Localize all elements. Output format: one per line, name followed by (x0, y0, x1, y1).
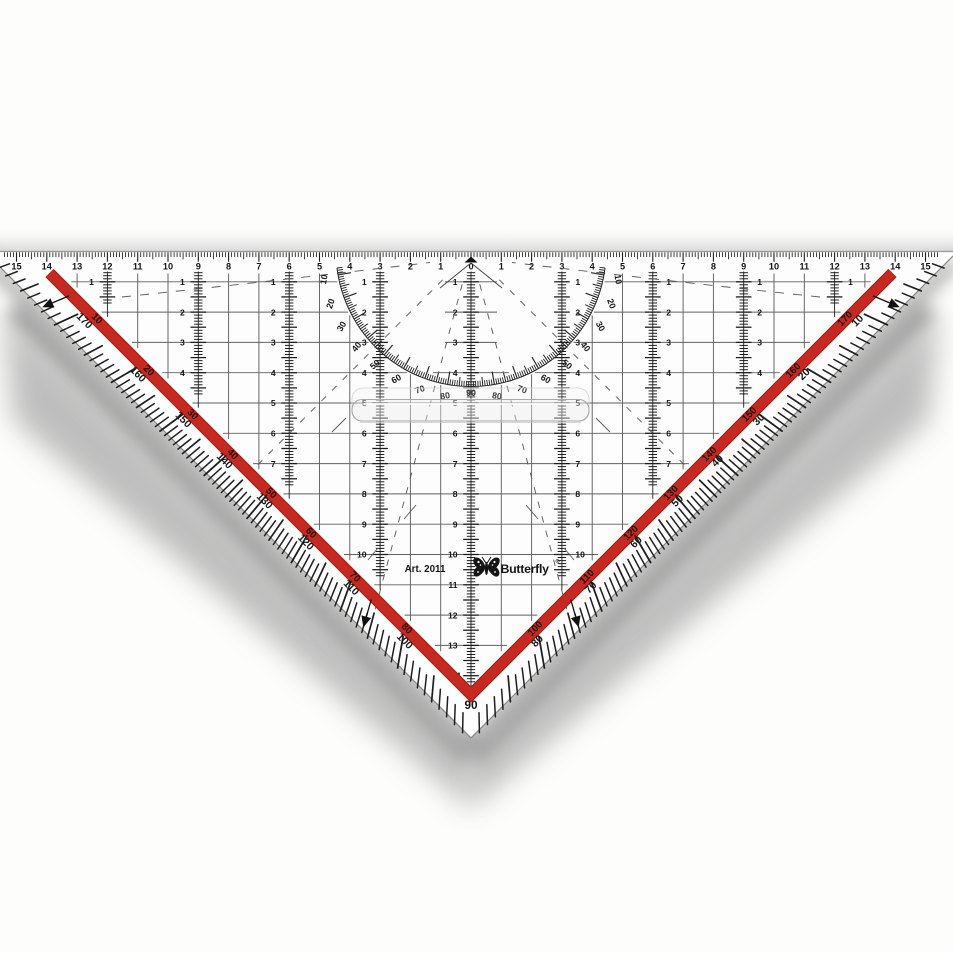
svg-text:5: 5 (271, 398, 276, 408)
svg-text:2: 2 (757, 307, 762, 317)
svg-text:7: 7 (256, 261, 261, 271)
svg-text:13: 13 (72, 261, 82, 271)
svg-text:7: 7 (271, 459, 276, 469)
svg-text:6: 6 (575, 429, 580, 439)
svg-text:9: 9 (453, 519, 458, 529)
svg-text:10: 10 (357, 550, 367, 560)
svg-text:7: 7 (362, 459, 367, 469)
svg-text:3: 3 (559, 261, 564, 271)
svg-text:11: 11 (448, 580, 457, 590)
svg-text:4: 4 (453, 368, 458, 378)
svg-text:12: 12 (102, 261, 112, 271)
svg-text:7: 7 (681, 261, 686, 271)
svg-text:9: 9 (196, 261, 201, 271)
svg-text:6: 6 (666, 429, 671, 439)
svg-text:4: 4 (347, 261, 353, 271)
svg-text:2: 2 (362, 307, 367, 317)
svg-text:9: 9 (575, 519, 580, 529)
svg-text:6: 6 (650, 261, 655, 271)
svg-text:11: 11 (799, 261, 809, 271)
svg-text:6: 6 (362, 429, 367, 439)
svg-text:4: 4 (362, 368, 367, 378)
svg-text:6: 6 (453, 429, 458, 439)
svg-text:2: 2 (180, 307, 185, 317)
svg-text:9: 9 (362, 519, 367, 529)
svg-text:5: 5 (317, 261, 322, 271)
svg-text:7: 7 (575, 459, 580, 469)
svg-text:4: 4 (271, 368, 276, 378)
svg-text:8: 8 (453, 489, 458, 499)
svg-text:8: 8 (711, 261, 716, 271)
svg-text:1: 1 (180, 277, 185, 287)
svg-text:Butterfly: Butterfly (501, 562, 550, 576)
svg-text:4: 4 (575, 368, 580, 378)
svg-text:3: 3 (666, 338, 671, 348)
svg-text:8: 8 (226, 261, 231, 271)
svg-text:5: 5 (666, 398, 671, 408)
svg-text:12: 12 (448, 610, 458, 620)
svg-text:3: 3 (757, 338, 762, 348)
svg-text:1: 1 (757, 277, 762, 287)
svg-text:1: 1 (89, 277, 94, 287)
svg-text:1: 1 (848, 277, 853, 287)
svg-text:Art. 2011: Art. 2011 (405, 564, 446, 575)
svg-text:12: 12 (829, 261, 839, 271)
svg-text:2: 2 (666, 307, 671, 317)
svg-text:11: 11 (133, 261, 143, 271)
svg-text:8: 8 (575, 489, 580, 499)
svg-text:2: 2 (408, 261, 413, 271)
svg-text:3: 3 (453, 338, 458, 348)
svg-text:1: 1 (362, 277, 367, 287)
svg-text:15: 15 (920, 261, 930, 271)
svg-text:7: 7 (453, 459, 458, 469)
svg-text:9: 9 (741, 261, 746, 271)
svg-text:13: 13 (860, 261, 870, 271)
svg-text:1: 1 (666, 277, 671, 287)
svg-text:10: 10 (318, 274, 330, 285)
svg-text:2: 2 (529, 261, 534, 271)
svg-text:4: 4 (757, 368, 762, 378)
svg-text:14: 14 (42, 261, 53, 271)
svg-text:6: 6 (287, 261, 292, 271)
svg-text:6: 6 (271, 429, 276, 439)
svg-text:10: 10 (448, 550, 458, 560)
svg-text:7: 7 (666, 459, 671, 469)
svg-text:10: 10 (612, 274, 624, 285)
svg-text:3: 3 (180, 338, 185, 348)
svg-text:2: 2 (575, 307, 580, 317)
svg-text:8: 8 (362, 489, 367, 499)
svg-text:5: 5 (620, 261, 625, 271)
svg-text:10: 10 (163, 261, 173, 271)
svg-text:1: 1 (271, 277, 276, 287)
svg-text:1: 1 (575, 277, 580, 287)
svg-text:3: 3 (378, 261, 383, 271)
svg-text:1: 1 (499, 261, 504, 271)
svg-text:13: 13 (448, 641, 458, 651)
svg-text:®: ® (556, 558, 560, 565)
svg-text:10: 10 (575, 550, 585, 560)
svg-text:2: 2 (271, 307, 276, 317)
svg-text:3: 3 (271, 338, 276, 348)
svg-text:10: 10 (769, 261, 779, 271)
svg-text:4: 4 (666, 368, 671, 378)
svg-text:14: 14 (890, 261, 901, 271)
svg-text:4: 4 (180, 368, 185, 378)
svg-text:15: 15 (11, 261, 21, 271)
svg-text:90: 90 (464, 698, 478, 712)
svg-text:0: 0 (468, 261, 473, 271)
svg-text:1: 1 (438, 261, 443, 271)
svg-text:4: 4 (590, 261, 596, 271)
svg-text:1: 1 (453, 277, 458, 287)
